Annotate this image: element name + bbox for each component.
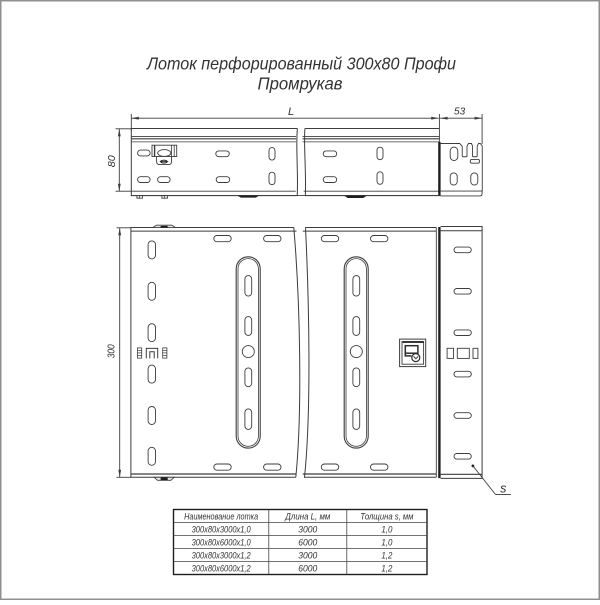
svg-text:1,2: 1,2 bbox=[381, 551, 393, 562]
svg-text:300: 300 bbox=[107, 344, 118, 358]
svg-text:300х80х6000х1,0: 300х80х6000х1,0 bbox=[192, 538, 252, 549]
svg-text:1,2: 1,2 bbox=[381, 564, 393, 575]
svg-text:53: 53 bbox=[454, 107, 466, 118]
svg-text:L: L bbox=[288, 106, 294, 118]
svg-text:6000: 6000 bbox=[298, 538, 318, 549]
svg-text:300х80х3000х1,2: 300х80х3000х1,2 bbox=[192, 551, 252, 562]
svg-text:300х80х6000х1,2: 300х80х6000х1,2 bbox=[192, 564, 252, 575]
svg-text:Наименование лотка: Наименование лотка bbox=[184, 512, 258, 523]
svg-text:80: 80 bbox=[107, 155, 118, 167]
svg-text:3000: 3000 bbox=[298, 525, 318, 536]
svg-text:Промрукав: Промрукав bbox=[258, 74, 343, 94]
svg-text:3000: 3000 bbox=[298, 551, 318, 562]
svg-text:Лоток перфорированный 300х80 П: Лоток перфорированный 300х80 Профи bbox=[146, 54, 456, 74]
svg-text:1,0: 1,0 bbox=[381, 538, 393, 549]
svg-text:6000: 6000 bbox=[298, 564, 318, 575]
svg-text:300х80х3000х1,0: 300х80х3000х1,0 bbox=[192, 525, 252, 536]
svg-text:s: s bbox=[500, 482, 506, 496]
svg-text:Длина L, мм: Длина L, мм bbox=[284, 512, 330, 523]
svg-text:1,0: 1,0 bbox=[381, 525, 393, 536]
svg-text:Толщина s, мм: Толщина s, мм bbox=[360, 512, 413, 523]
